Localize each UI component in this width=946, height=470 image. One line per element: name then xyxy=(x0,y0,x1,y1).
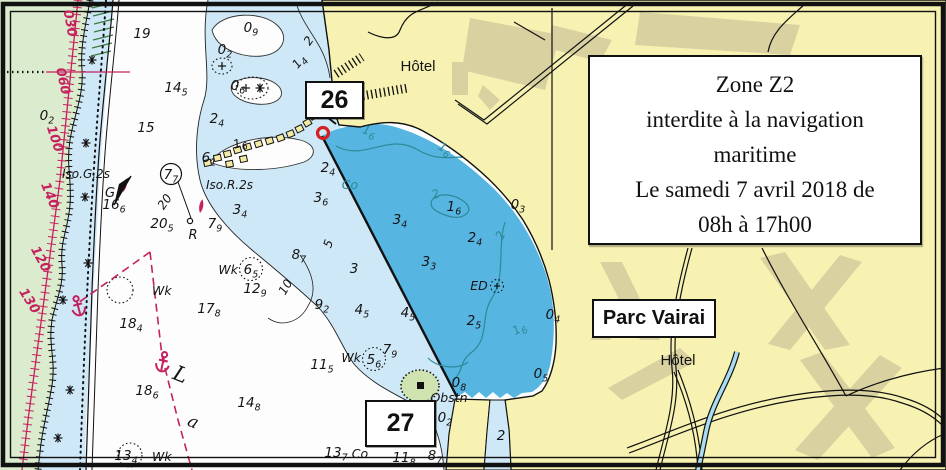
feature-label: Iso.G.2s xyxy=(62,167,110,181)
depth-sounding: 15 xyxy=(137,120,154,136)
feature-label: Wk xyxy=(341,350,361,365)
notice-line: interdite à la navigation xyxy=(590,102,920,137)
depth-sounding: 2 xyxy=(497,428,506,444)
feature-label: Wk xyxy=(152,449,172,464)
depth-sounding: 19 xyxy=(133,26,150,42)
notice-line: maritime xyxy=(590,137,920,172)
notice-line: Zone Z2 xyxy=(590,67,920,102)
feature-label: ED xyxy=(470,278,488,293)
marker-27: 27 xyxy=(365,400,436,447)
marker-26: 26 xyxy=(305,81,364,119)
notice-line: 08h à 17h00 xyxy=(590,207,920,242)
land-finger xyxy=(446,399,490,470)
feature-label: Obstn xyxy=(430,390,467,405)
feature-label: G xyxy=(105,186,115,201)
hotel-label-top: Hôtel xyxy=(388,58,448,75)
nautical-chart: 1914515166205178184186148134115871299209… xyxy=(0,0,946,470)
zone-z2-notice: Zone Z2interdite à la navigationmaritime… xyxy=(588,55,922,245)
hotel-label-bottom: Hôtel xyxy=(648,352,708,369)
parc-vairai-label: Parc Vairai xyxy=(592,299,716,338)
feature-label: Iso.R.2s xyxy=(206,178,253,192)
feature-label: Co xyxy=(352,446,369,461)
feature-label: R xyxy=(188,228,197,243)
feature-label: Co xyxy=(342,177,359,192)
feature-label: Wk xyxy=(218,262,238,277)
feature-label: Wk xyxy=(152,283,172,298)
notice-line: Le samedi 7 avril 2018 de xyxy=(590,172,920,207)
depth-sounding: 3 xyxy=(350,261,359,277)
